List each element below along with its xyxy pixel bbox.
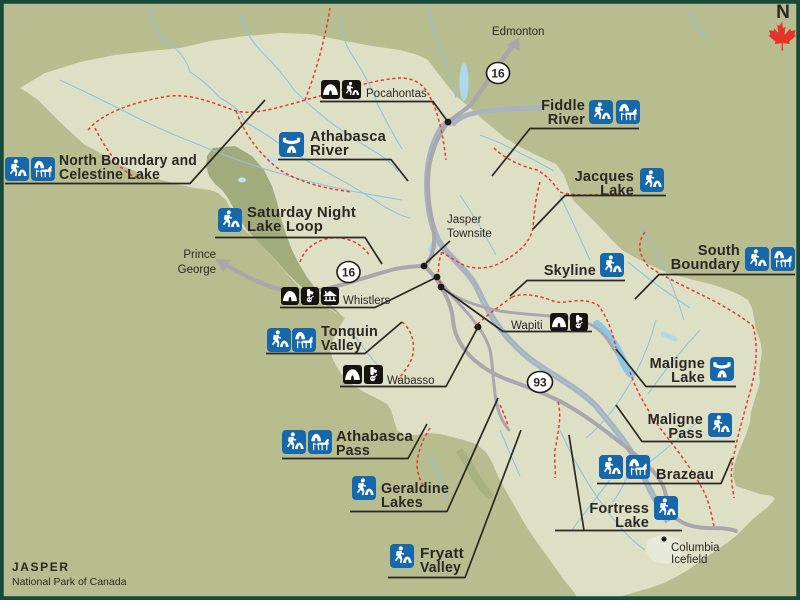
- svg-text:Townsite: Townsite: [447, 228, 492, 240]
- svg-text:JASPER: JASPER: [12, 560, 70, 574]
- svg-text:Valley: Valley: [420, 560, 461, 576]
- svg-text:River: River: [548, 112, 585, 128]
- svg-text:Boundary: Boundary: [671, 257, 740, 273]
- svg-text:Valley: Valley: [321, 338, 362, 354]
- svg-text:93: 93: [533, 376, 547, 390]
- svg-text:Skyline: Skyline: [544, 263, 596, 279]
- svg-text:Lakes: Lakes: [381, 495, 423, 511]
- svg-text:Pocahontas: Pocahontas: [366, 88, 427, 100]
- svg-text:George: George: [178, 264, 216, 276]
- svg-text:16: 16: [342, 266, 356, 280]
- svg-text:16: 16: [491, 67, 505, 81]
- svg-text:Jasper: Jasper: [447, 214, 482, 226]
- svg-text:Celestine Lake: Celestine Lake: [59, 167, 160, 183]
- svg-text:Lake Loop: Lake Loop: [247, 219, 323, 235]
- svg-text:Prince: Prince: [183, 249, 216, 261]
- svg-text:Wapiti: Wapiti: [511, 320, 543, 332]
- svg-text:Whistlers: Whistlers: [343, 295, 391, 307]
- svg-text:Pass: Pass: [668, 426, 703, 442]
- svg-text:Lake: Lake: [600, 183, 634, 199]
- svg-text:Icefield: Icefield: [671, 554, 707, 566]
- svg-text:Lake: Lake: [671, 370, 705, 386]
- svg-text:National Park of Canada: National Park of Canada: [12, 576, 127, 588]
- svg-text:Edmonton: Edmonton: [492, 26, 544, 38]
- svg-text:Wabasso: Wabasso: [387, 375, 435, 387]
- svg-text:Pass: Pass: [336, 443, 370, 459]
- svg-text:Brazeau: Brazeau: [656, 467, 714, 483]
- svg-text:Columbia: Columbia: [671, 542, 720, 554]
- svg-text:N: N: [776, 2, 790, 23]
- svg-text:River: River: [310, 143, 349, 159]
- svg-text:Lake: Lake: [615, 515, 649, 531]
